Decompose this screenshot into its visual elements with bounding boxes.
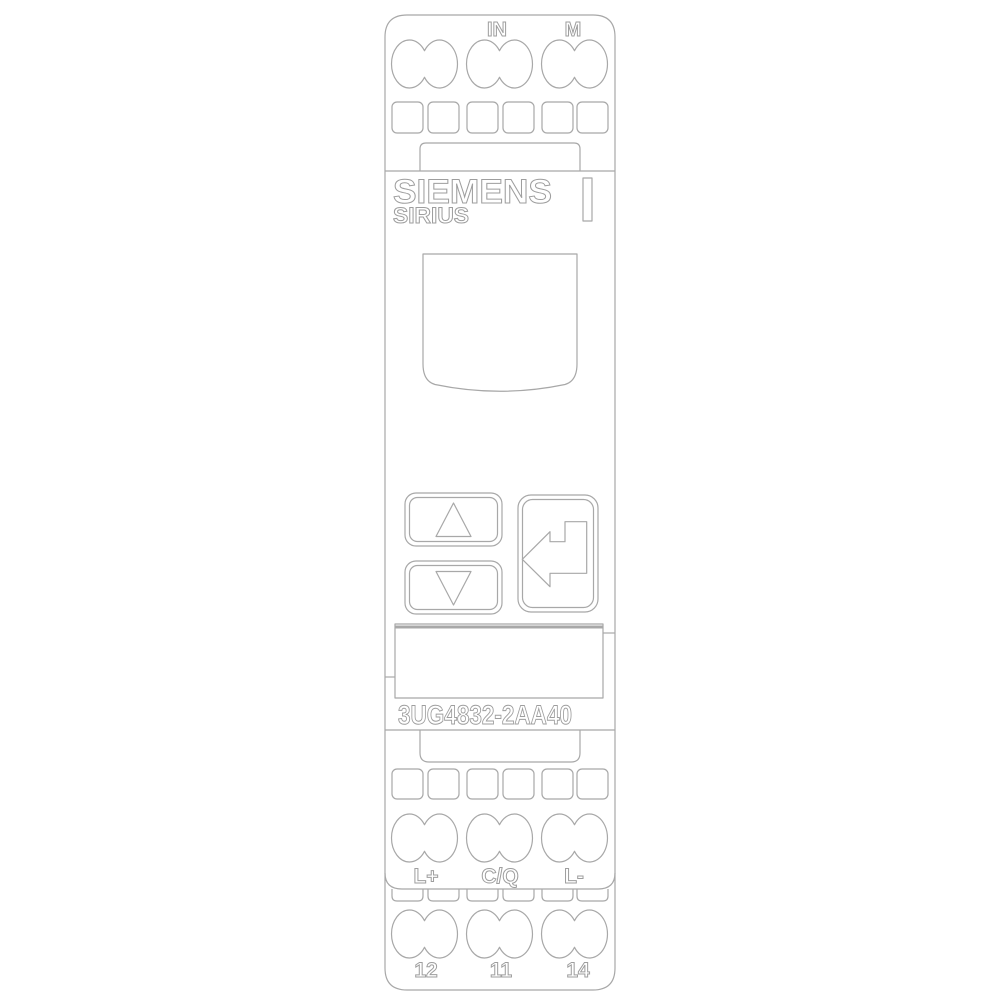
- label-plate-frame: [395, 624, 603, 698]
- terminal-slot: [392, 769, 423, 799]
- terminal-label-12: 12: [414, 959, 437, 982]
- terminal-slot: [577, 769, 608, 799]
- terminal-slot: [577, 102, 608, 133]
- terminal-slot: [503, 769, 534, 799]
- terminal-label-m: M: [565, 19, 582, 41]
- terminal-slot: [542, 102, 573, 133]
- terminal-slot: [392, 102, 423, 133]
- series-text: SIRIUS: [393, 203, 469, 228]
- brand-divider-bar: [583, 178, 592, 221]
- terminal-label-cq: C/Q: [481, 865, 518, 888]
- enter-button[interactable]: [518, 495, 598, 612]
- lcd-display-window: [423, 254, 577, 391]
- terminal-label-11: 11: [490, 959, 513, 982]
- terminal-slot: [467, 102, 498, 133]
- relay-line-drawing: IN M SIEMENS SIRIUS 3UG4832-2: [0, 0, 1000, 1000]
- terminal-slot: [467, 769, 498, 799]
- down-button[interactable]: [405, 561, 502, 614]
- product-drawing-canvas: IN M SIEMENS SIRIUS 3UG4832-2: [0, 0, 1000, 1000]
- terminal-slot: [542, 769, 573, 799]
- model-number-text: 3UG4832-2AA40: [398, 700, 572, 730]
- up-button[interactable]: [405, 493, 502, 546]
- terminal-slot: [503, 102, 534, 133]
- terminal-slot: [428, 102, 459, 133]
- terminal-label-lminus: L-: [564, 865, 584, 888]
- terminal-label-lplus: L+: [413, 865, 438, 888]
- terminal-label-14: 14: [566, 959, 590, 982]
- terminal-slot: [428, 769, 459, 799]
- terminal-label-in: IN: [487, 19, 507, 41]
